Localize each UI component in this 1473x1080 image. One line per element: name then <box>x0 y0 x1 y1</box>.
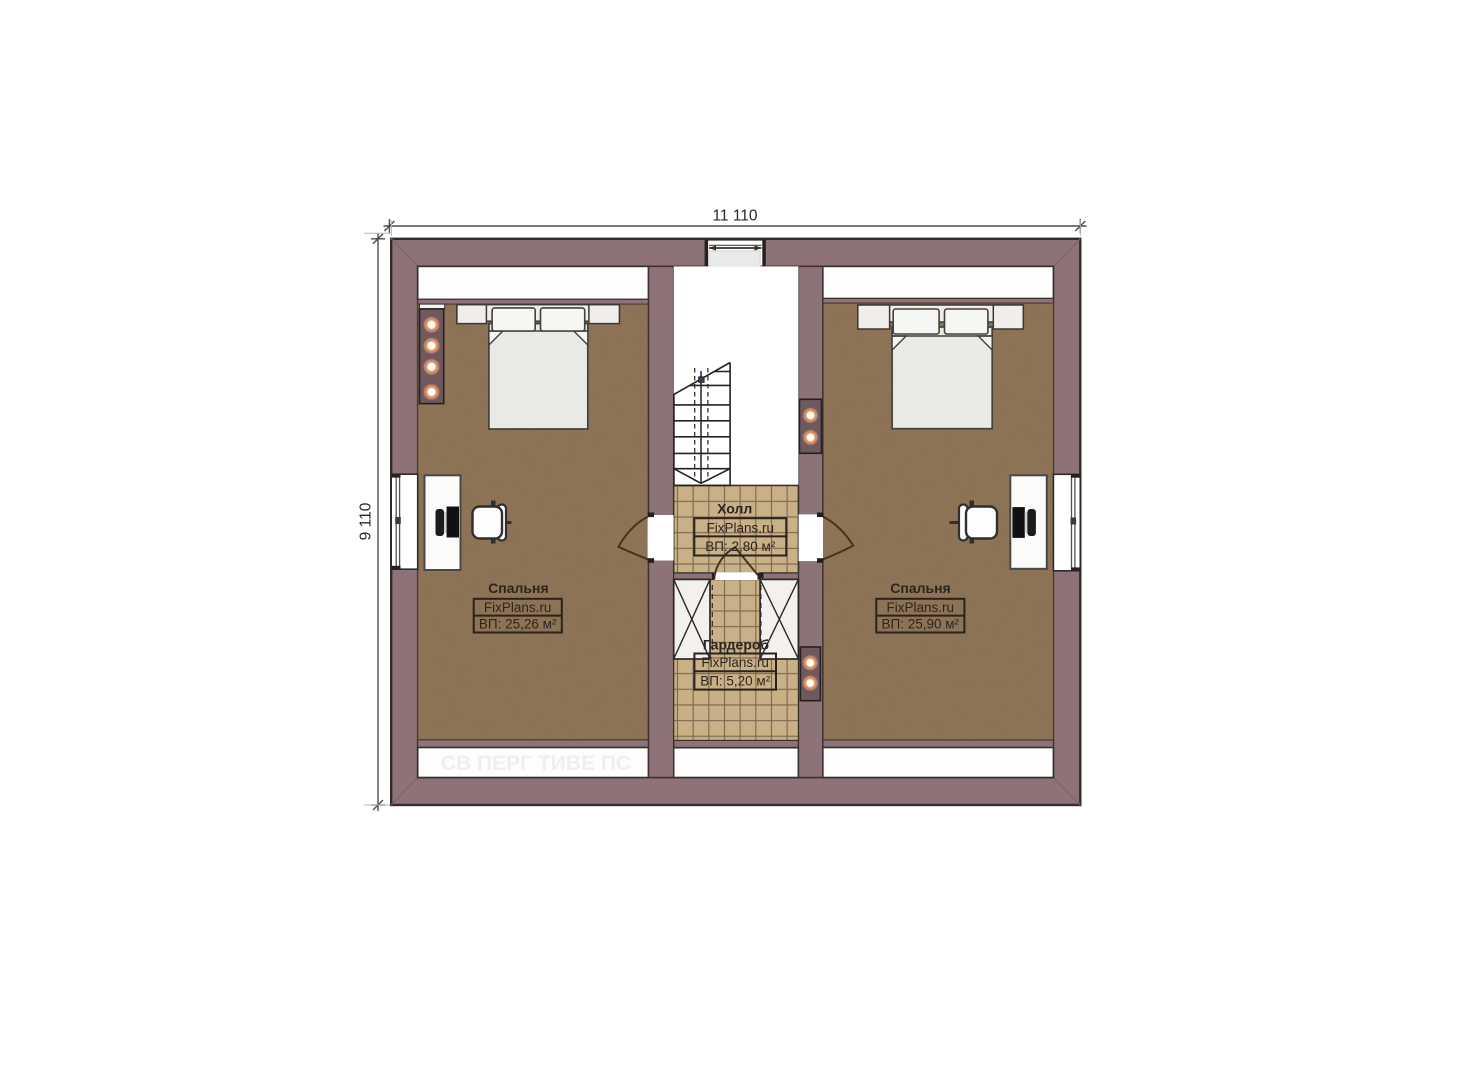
svg-text:ВП: 2,80 м²: ВП: 2,80 м² <box>705 539 776 554</box>
svg-text:11 110: 11 110 <box>712 208 757 225</box>
svg-text:9 110: 9 110 <box>358 502 375 540</box>
svg-text:FixPlans.ru: FixPlans.ru <box>707 520 775 535</box>
svg-text:Спальня: Спальня <box>890 580 950 596</box>
svg-text:Гардероб: Гардероб <box>703 636 770 652</box>
svg-text:FixPlans.ru: FixPlans.ru <box>887 600 955 615</box>
svg-text:ВП: 25,26 м²: ВП: 25,26 м² <box>479 617 557 632</box>
svg-text:ВП: 25,90 м²: ВП: 25,90 м² <box>882 617 960 632</box>
svg-text:СВ ПЕРГ ТИВЕ ПС: СВ ПЕРГ ТИВЕ ПС <box>441 752 631 775</box>
svg-text:ВП: 5,20 м²: ВП: 5,20 м² <box>700 673 771 688</box>
svg-text:FixPlans.ru: FixPlans.ru <box>701 655 769 670</box>
svg-text:Спальня: Спальня <box>488 580 548 596</box>
svg-text:Холл: Холл <box>717 500 752 516</box>
svg-text:FixPlans.ru: FixPlans.ru <box>484 600 552 615</box>
